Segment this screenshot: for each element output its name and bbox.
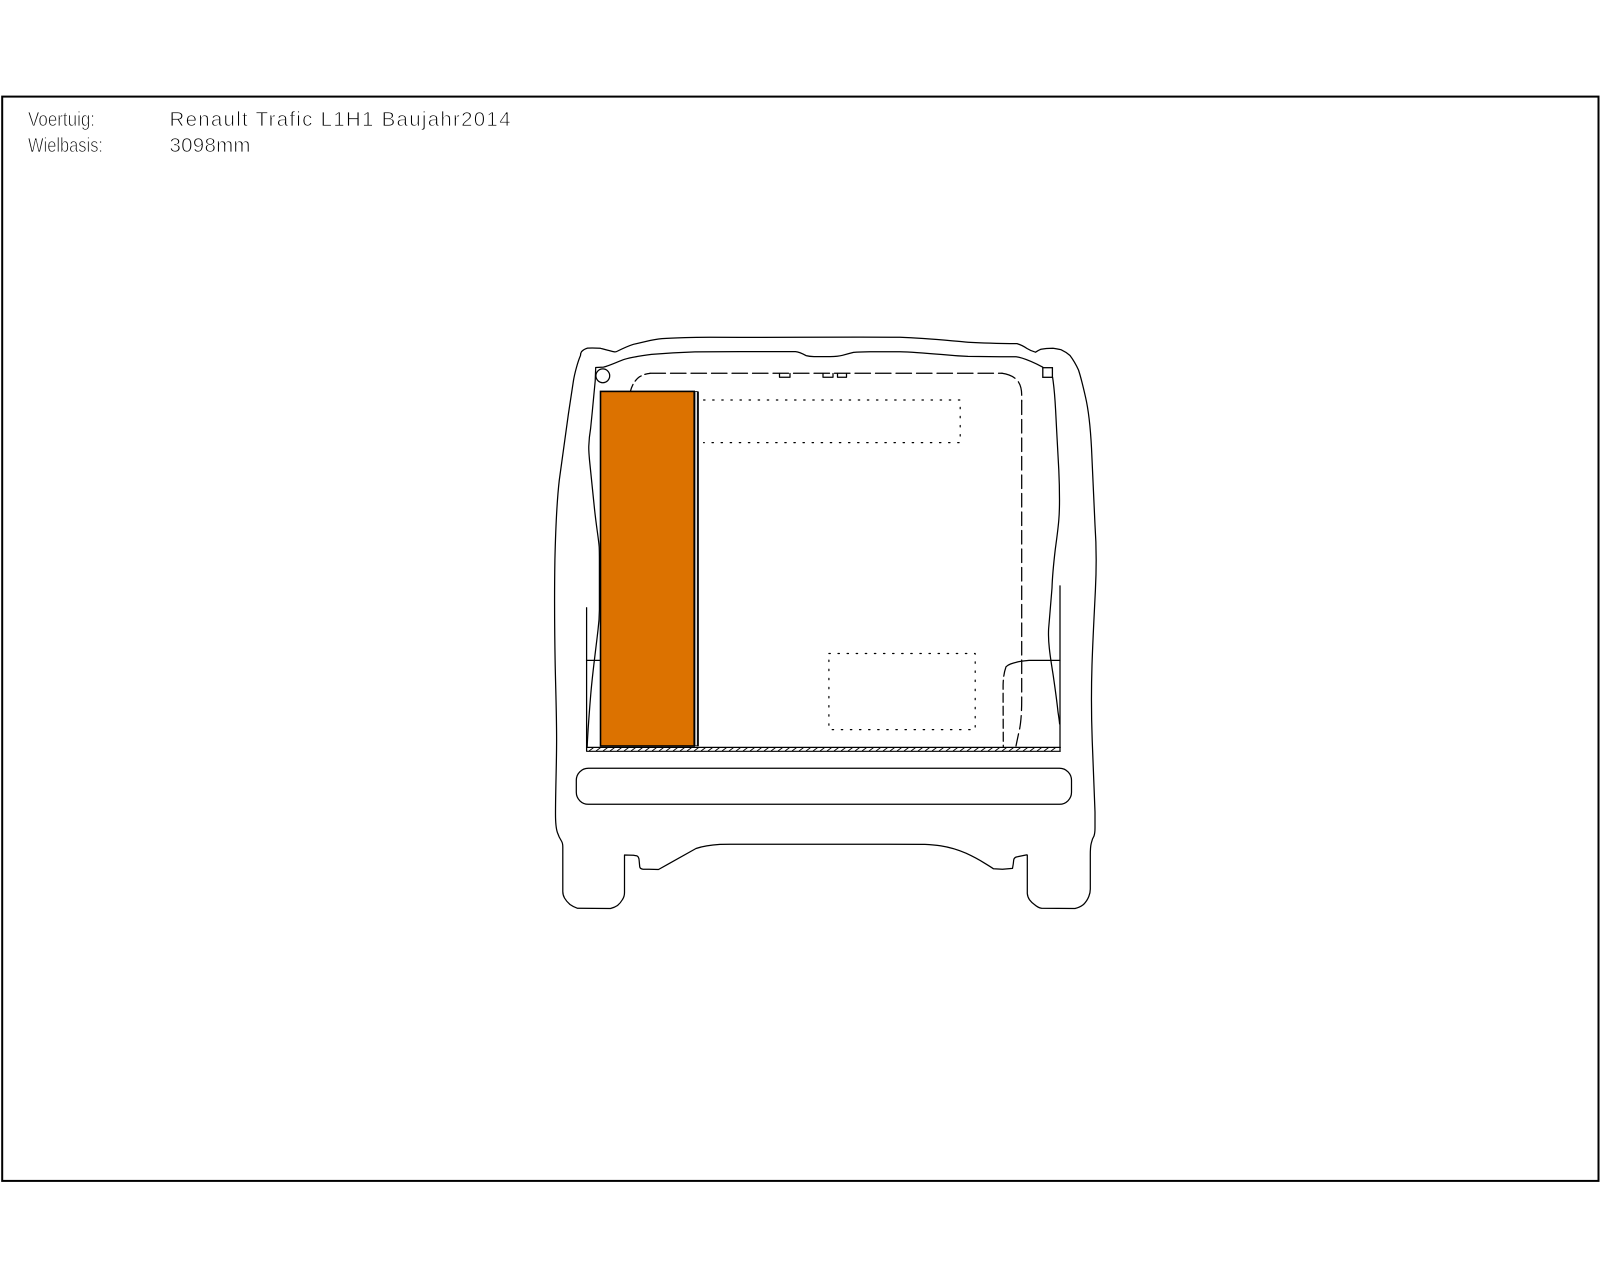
svg-text:Voertuig:: Voertuig: xyxy=(28,108,95,131)
svg-text:Wielbasis:: Wielbasis: xyxy=(28,134,103,157)
svg-text:Renault Trafic L1H1 Baujahr201: Renault Trafic L1H1 Baujahr2014 xyxy=(170,108,511,131)
svg-text:3098mm: 3098mm xyxy=(170,134,251,157)
